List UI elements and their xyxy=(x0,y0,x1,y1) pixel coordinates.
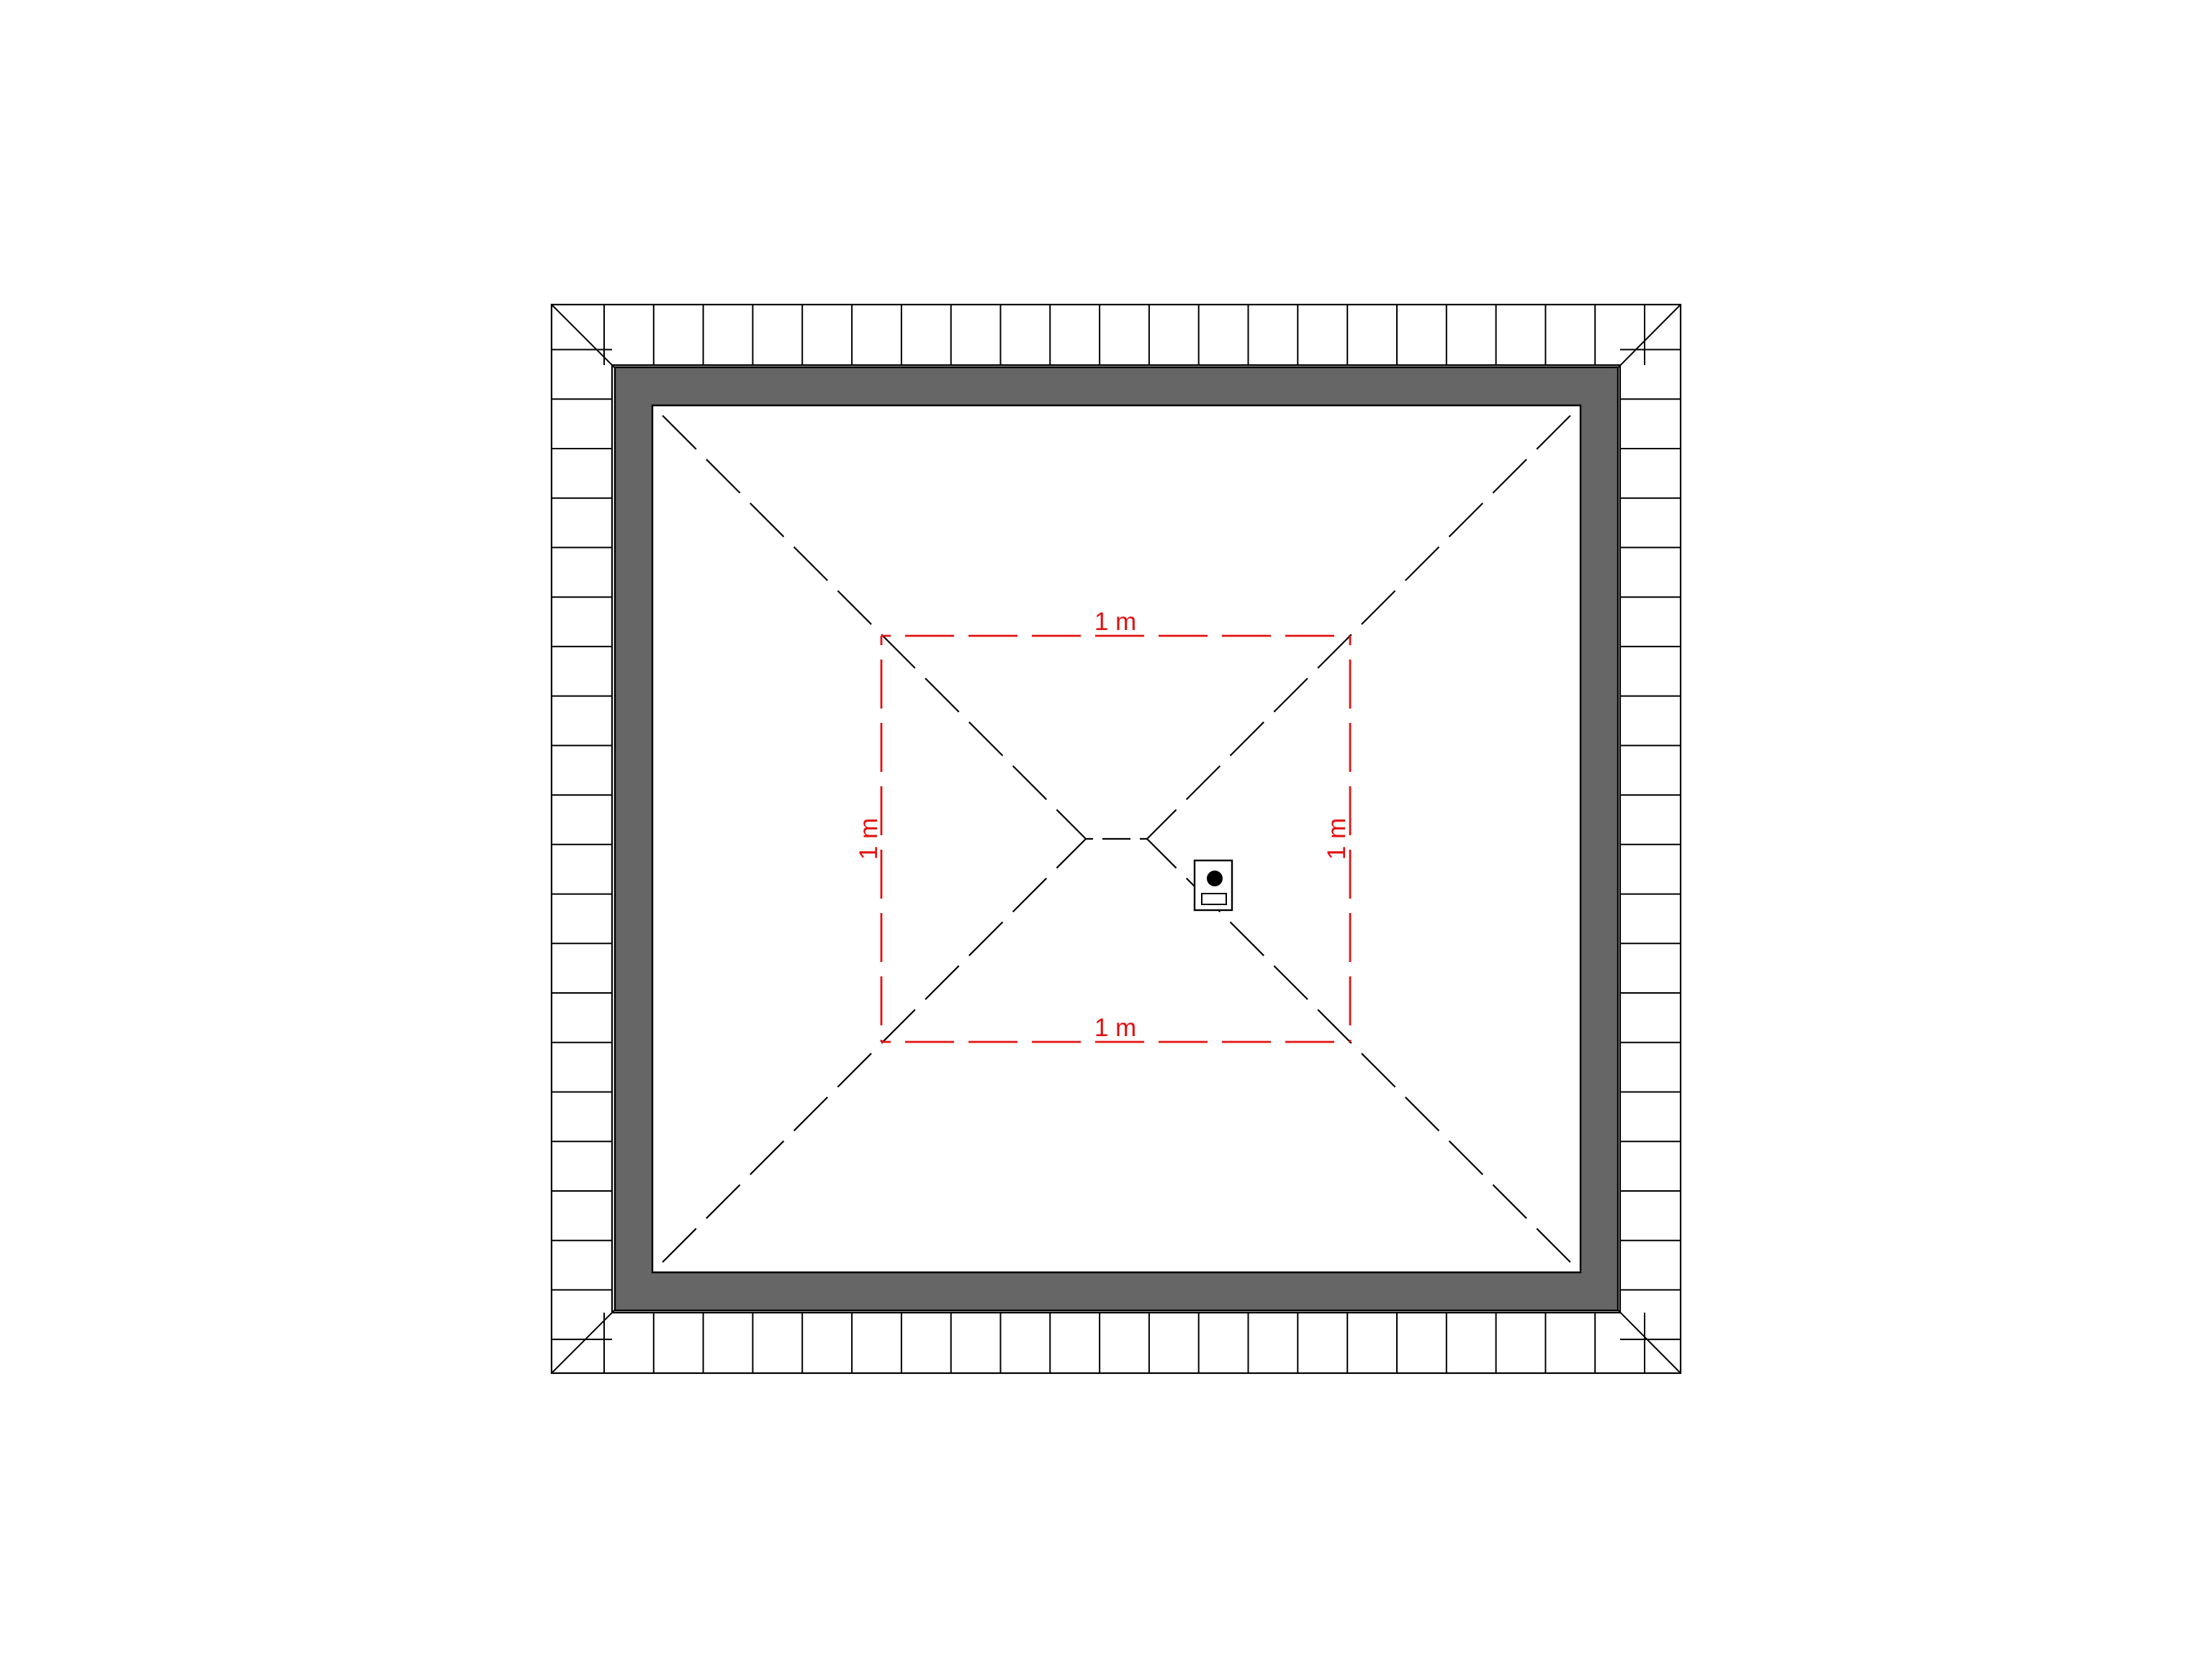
dimension-label-bottom: 1 m xyxy=(1094,1014,1136,1042)
hip-line-top-right xyxy=(1147,405,1581,839)
tile-grid-bottom xyxy=(604,1313,1645,1373)
dimension-label-left: 1 m xyxy=(855,818,883,860)
tile-grid-top xyxy=(604,305,1645,365)
dimension-label-top: 1 m xyxy=(1094,608,1136,636)
roof-plan-page: 1 m 1 m 1 m 1 m xyxy=(0,0,2212,1659)
dimension-label-right: 1 m xyxy=(1323,818,1351,860)
chimney-flue-dot xyxy=(1207,871,1223,886)
chimney-symbol xyxy=(1195,860,1232,910)
tile-grid-left xyxy=(552,350,612,1340)
roof-plan-drawing: 1 m 1 m 1 m 1 m xyxy=(0,0,2212,1659)
hip-line-bottom-left xyxy=(652,839,1086,1272)
tile-grid-right xyxy=(1620,350,1681,1340)
chimney-vent-rect xyxy=(1202,894,1226,904)
hip-line-top-left xyxy=(652,405,1086,839)
